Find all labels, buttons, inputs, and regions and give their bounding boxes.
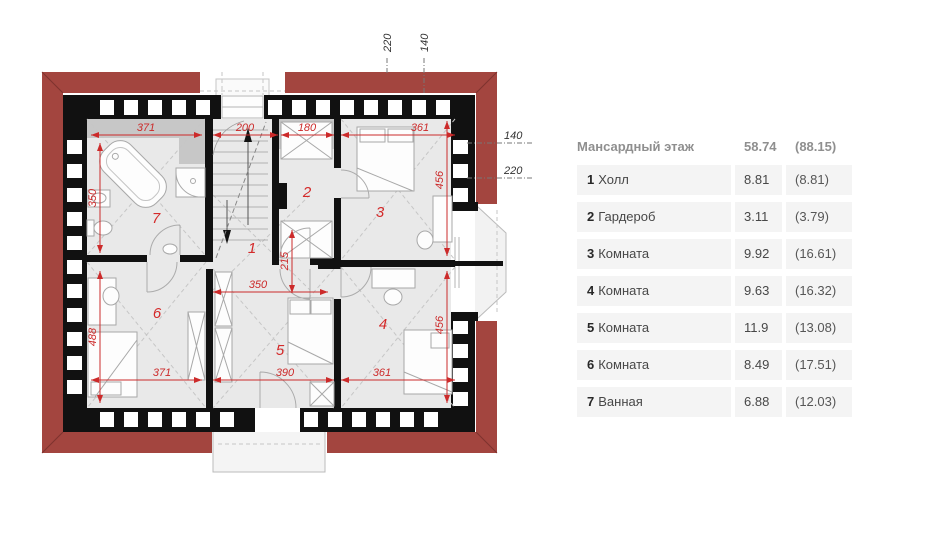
dim-350-left: 350 — [87, 188, 99, 207]
room-1-label: 1 — [248, 240, 256, 257]
room-number: 7 — [587, 394, 594, 409]
dim-215: 215 — [279, 251, 291, 271]
room-5-label: 5 — [276, 342, 285, 359]
sink — [163, 244, 177, 254]
floor-plan-drawing: 371 200 180 361 350 456 215 350 456 488 … — [0, 0, 545, 530]
room-name: Холл — [598, 172, 629, 187]
top-dormer — [216, 79, 269, 97]
dim-488: 488 — [87, 327, 99, 346]
room-area-total: (16.61) — [786, 239, 852, 269]
room-2-label: 2 — [302, 184, 312, 201]
room-number: 6 — [587, 357, 594, 372]
room-number: 1 — [587, 172, 594, 187]
room-area: 3.11 — [735, 202, 782, 232]
dim-200: 200 — [235, 122, 255, 134]
room-area: 9.63 — [735, 276, 782, 306]
dim-361-top: 361 — [411, 122, 429, 134]
table-row: 1Холл 8.81 (8.81) — [577, 165, 857, 195]
dim-456-top: 456 — [434, 170, 446, 189]
dim-456-bottom: 456 — [434, 315, 446, 334]
room-area-total: (17.51) — [786, 350, 852, 380]
table-row: 4Комната 9.63 (16.32) — [577, 276, 857, 306]
room-area-total: (13.08) — [786, 313, 852, 343]
chair — [417, 231, 433, 249]
room-3-label: 3 — [376, 204, 385, 221]
room-area-total: (16.32) — [786, 276, 852, 306]
room-area: 11.9 — [735, 313, 782, 343]
room-area-total: (8.81) — [786, 165, 852, 195]
chair — [384, 289, 402, 305]
desk — [372, 269, 415, 288]
room-number: 5 — [587, 320, 594, 335]
dim-390: 390 — [276, 367, 295, 379]
dim-361-bottom: 361 — [373, 367, 391, 379]
floor-plan: 371 200 180 361 350 456 215 350 456 488 … — [0, 0, 545, 530]
room-4-label: 4 — [379, 316, 387, 333]
desk — [433, 196, 452, 242]
toilet — [94, 221, 112, 235]
toilet-cistern — [87, 220, 94, 236]
balcony — [213, 426, 325, 472]
dim-140-top: 140 — [419, 33, 431, 52]
table-row: 3Комната 9.92 (16.61) — [577, 239, 857, 269]
bed — [404, 330, 452, 394]
dim-140-right: 140 — [504, 130, 523, 142]
room-area-total: (3.79) — [786, 202, 852, 232]
room-area: 6.88 — [735, 387, 782, 417]
area-table-header: Мансардный этаж 58.74 (88.15) — [577, 136, 857, 158]
room-area-total: (12.03) — [786, 387, 852, 417]
room-name: Комната — [598, 357, 649, 372]
room-area: 8.81 — [735, 165, 782, 195]
dim-220-right: 220 — [503, 165, 523, 177]
table-row: 5Комната 11.9 (13.08) — [577, 313, 857, 343]
room-name: Комната — [598, 283, 649, 298]
room-6-label: 6 — [153, 305, 162, 322]
room-area: 9.92 — [735, 239, 782, 269]
room-number: 4 — [587, 283, 594, 298]
table-row: 2Гардероб 3.11 (3.79) — [577, 202, 857, 232]
table-row: 6Комната 8.49 (17.51) — [577, 350, 857, 380]
dim-350-mid: 350 — [249, 279, 268, 291]
floor-area-total: (88.15) — [786, 136, 852, 158]
dim-371-bottom: 371 — [153, 367, 171, 379]
shower — [176, 168, 205, 197]
dim-220-top: 220 — [382, 33, 394, 53]
dim-371-top: 371 — [137, 122, 155, 134]
room-name: Гардероб — [598, 209, 655, 224]
room-name: Комната — [598, 246, 649, 261]
floor-title: Мансардный этаж — [577, 136, 731, 158]
room-number: 2 — [587, 209, 594, 224]
room-area: 8.49 — [735, 350, 782, 380]
dim-180: 180 — [298, 122, 317, 134]
area-table: Мансардный этаж 58.74 (88.15) 1Холл 8.81… — [577, 136, 857, 417]
table-row: 7Ванная 6.88 (12.03) — [577, 387, 857, 417]
room-name: Ванная — [598, 394, 643, 409]
room-number: 3 — [587, 246, 594, 261]
room-name: Комната — [598, 320, 649, 335]
floor-area: 58.74 — [735, 136, 782, 158]
room-7-label: 7 — [152, 210, 161, 227]
chair — [103, 287, 119, 305]
